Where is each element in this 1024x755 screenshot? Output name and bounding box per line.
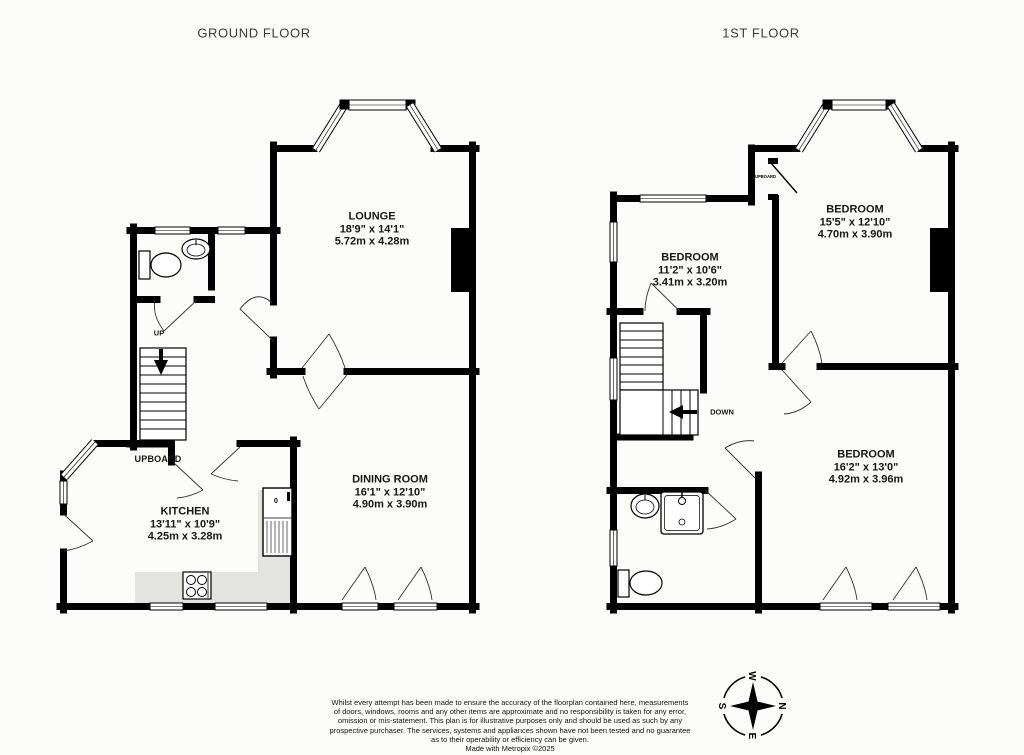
- room-metric: 4.90m x 3.90m: [352, 498, 428, 511]
- credit-line: Made with Metropix ©2025: [330, 744, 691, 753]
- room-metric: 5.72m x 4.28m: [335, 235, 410, 248]
- room-name: KITCHEN: [148, 505, 223, 518]
- lounge-bay-window: [313, 100, 442, 152]
- room-imperial: 18'9" x 14'1": [335, 223, 410, 236]
- compass-rose: W N E S: [715, 668, 791, 744]
- first-doors: [645, 283, 927, 600]
- disclaimer-line: as to their operability or efficiency ca…: [330, 735, 691, 744]
- floorplan-canvas: 0: [0, 0, 1024, 755]
- disclaimer-line: of doors, windows, rooms and any other i…: [330, 707, 691, 716]
- room-name: BEDROOM: [818, 203, 893, 216]
- compass-west: W: [746, 671, 757, 681]
- shower-icon: [661, 492, 703, 534]
- room-metric: 4.70m x 3.90m: [818, 228, 893, 241]
- ground-doors: [64, 297, 433, 600]
- room-imperial: 16'1" x 12'10": [352, 486, 428, 499]
- stairs-down: [620, 323, 698, 435]
- room-label-bedroom-3: BEDROOM 16'2" x 13'0" 4.92m x 3.96m: [829, 448, 904, 486]
- basin-icon: [182, 239, 210, 259]
- room-label-bedroom-2: BEDROOM 11'2" x 10'6" 3.41m x 3.20m: [653, 251, 728, 289]
- disclaimer-line: prospective purchaser. The services, sys…: [330, 726, 691, 735]
- chimney-breast-first: [930, 228, 955, 292]
- room-metric: 4.92m x 3.96m: [829, 473, 904, 486]
- room-name: BEDROOM: [829, 448, 904, 461]
- cupboard-door: [768, 158, 797, 200]
- stove-icon: [183, 572, 211, 599]
- disclaimer-line: Whilst every attempt has been made to en…: [330, 698, 691, 707]
- floorplan-drawing: 0: [0, 0, 1024, 755]
- room-label-dining: DINING ROOM 16'1" x 12'10" 4.90m x 3.90m: [352, 473, 428, 511]
- room-imperial: 11'2" x 10'6": [653, 264, 728, 277]
- disclaimer-line: omission or mis-statement. This plan is …: [330, 716, 691, 725]
- room-name: LOUNGE: [335, 210, 410, 223]
- chimney-breast: [451, 228, 476, 292]
- stairs-up-label: UP: [154, 329, 164, 338]
- room-imperial: 13'11" x 10'9": [148, 518, 223, 531]
- room-metric: 4.25m x 3.28m: [148, 530, 223, 543]
- toilet-icon: [139, 251, 181, 279]
- room-name: BEDROOM: [653, 251, 728, 264]
- room-metric: 3.41m x 3.20m: [653, 276, 728, 289]
- kitchen-bay-window: [60, 440, 98, 504]
- compass-north: N: [776, 702, 787, 709]
- bedroom-bay-window: [796, 100, 923, 152]
- first-floor-title: 1ST FLOOR: [722, 26, 799, 41]
- ground-floor-title: GROUND FLOOR: [197, 26, 310, 41]
- compass-east: E: [746, 733, 757, 740]
- bathroom-basin-icon: [631, 494, 659, 518]
- room-label-kitchen: KITCHEN 13'11" x 10'9" 4.25m x 3.28m: [148, 505, 223, 543]
- ground-floor-plan: 0: [60, 100, 476, 610]
- compass-south: S: [716, 703, 727, 710]
- room-imperial: 16'2" x 13'0": [829, 461, 904, 474]
- first-floor-plan: CUPBOARD: [610, 100, 955, 610]
- cupboard-label: CUPBOARD: [752, 174, 776, 179]
- stairs-down-label: DOWN: [710, 408, 734, 417]
- room-imperial: 15'5" x 12'10": [818, 216, 893, 229]
- fridge-mark: 0: [274, 498, 278, 505]
- room-label-lounge: LOUNGE 18'9" x 14'1" 5.72m x 4.28m: [335, 210, 410, 248]
- understairs-cupboard-label: UPBOARD: [135, 454, 182, 464]
- compass-star-icon: [730, 682, 776, 730]
- room-label-bedroom-1: BEDROOM 15'5" x 12'10" 4.70m x 3.90m: [818, 203, 893, 241]
- stairs-up: [140, 348, 186, 440]
- disclaimer-text: Whilst every attempt has been made to en…: [330, 698, 691, 753]
- toilet-icon-first: [618, 570, 662, 597]
- room-name: DINING ROOM: [352, 473, 428, 486]
